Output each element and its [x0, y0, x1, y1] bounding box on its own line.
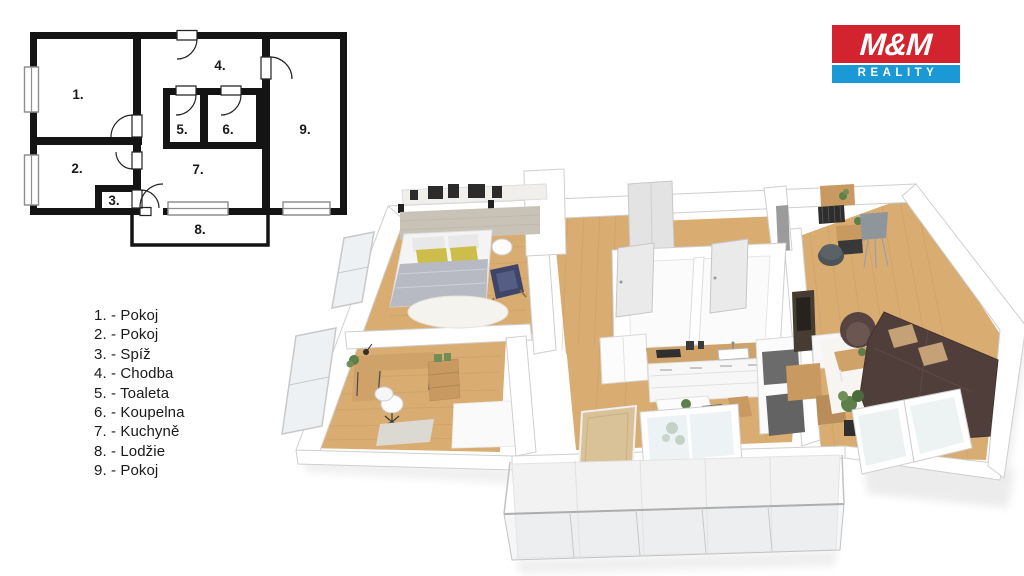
bedroom-rug [408, 296, 508, 328]
room-legend: 1. - Pokoj 2. - Pokoj 3. - Spíž 4. - Cho… [94, 306, 185, 481]
legend-item-6: 6. - Koupelna [94, 403, 185, 422]
legend-item-4: 4. - Chodba [94, 364, 185, 383]
living-window-1-glass [858, 408, 906, 466]
toilet-door-handle [620, 281, 623, 284]
room-number-4: 4. [214, 58, 225, 73]
legend-item-5: 5. - Toaleta [94, 384, 185, 403]
mm-reality-logo: M&M REALITY [832, 25, 960, 83]
room-number-5: 5. [176, 122, 187, 137]
room-number-1: 1. [72, 87, 83, 102]
drawer-unit [428, 359, 460, 401]
legend-item-8: 8. - Lodžie [94, 442, 185, 461]
coffee-table-plant [858, 348, 866, 356]
legend-item-1: 1. - Pokoj [94, 306, 185, 325]
hallway-3d [628, 181, 674, 253]
legend-item-9: 9. - Pokoj [94, 461, 185, 480]
office-chair-back [375, 387, 393, 401]
media-wood-cube-1 [786, 363, 822, 401]
round-side-table [492, 239, 512, 255]
logo-bottom-band: REALITY [832, 65, 960, 83]
tv-screen [796, 297, 811, 331]
logo-reality-text: REALITY [854, 68, 939, 80]
legend-item-7: 7. - Kuchyně [94, 422, 185, 441]
legend-item-3: 3. - Spíž [94, 345, 185, 364]
bathroom-door-handle [714, 277, 717, 280]
navy-armchair-cushion [496, 270, 518, 292]
room-number-2: 2. [71, 161, 82, 176]
room-number-3: 3. [108, 193, 119, 208]
logo-mm-text: M&M [859, 29, 932, 60]
shelf-wood-box-1 [820, 184, 855, 207]
room-number-9: 9. [299, 122, 310, 137]
pouf-top [820, 244, 842, 260]
toilet-door [616, 243, 654, 317]
room-number-8: 8. [194, 222, 205, 237]
faucet-head [732, 342, 735, 345]
logo-top-band: M&M [832, 25, 960, 63]
cooktop [656, 349, 681, 358]
floor-lamp-shade [860, 212, 888, 240]
brown-armchair-cushion [846, 322, 870, 346]
bathroom-door [710, 239, 748, 313]
legend-item-2: 2. - Pokoj [94, 325, 185, 344]
balcony-3d [504, 455, 844, 560]
room-number-6: 6. [222, 122, 233, 137]
floor-plan-2d: 1. 2. 3. 4. 5. 6. 7. 8. 9. [20, 22, 360, 262]
desk-plant-2 [347, 361, 354, 368]
sink [718, 348, 749, 360]
room-number-7: 7. [192, 162, 203, 177]
